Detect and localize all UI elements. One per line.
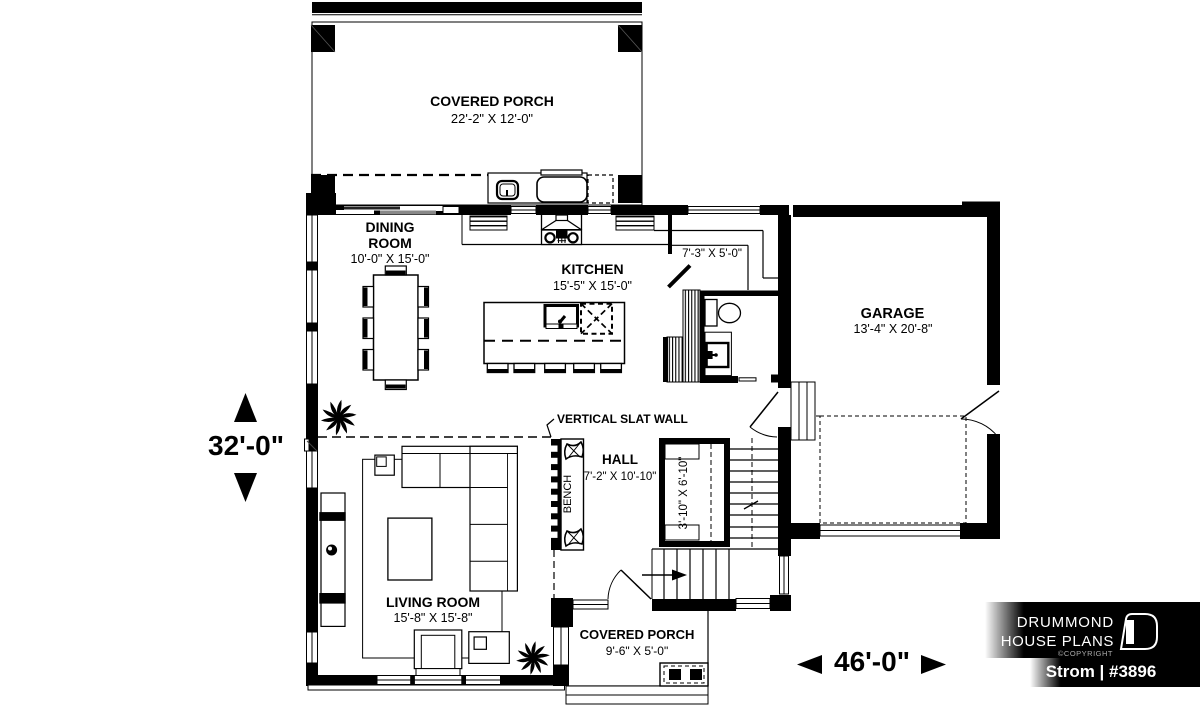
svg-text:DINING: DINING — [366, 219, 415, 235]
svg-text:10'-0" X 15'-0": 10'-0" X 15'-0" — [351, 252, 430, 266]
svg-text:ROOM: ROOM — [368, 235, 412, 251]
svg-text:9'-6" X 5'-0": 9'-6" X 5'-0" — [606, 644, 668, 658]
svg-text:32'-0": 32'-0" — [208, 430, 284, 461]
svg-text:DRUMMOND: DRUMMOND — [1017, 614, 1114, 631]
svg-text:BENCH: BENCH — [562, 475, 574, 514]
svg-text:15'-5" X 15'-0": 15'-5" X 15'-0" — [553, 279, 632, 293]
svg-text:15'-8" X 15'-8": 15'-8" X 15'-8" — [394, 611, 473, 625]
svg-text:COVERED PORCH: COVERED PORCH — [580, 627, 695, 642]
svg-text:©COPYRIGHT: ©COPYRIGHT — [1058, 649, 1113, 658]
svg-text:HALL: HALL — [602, 452, 638, 467]
svg-text:VERTICAL SLAT WALL: VERTICAL SLAT WALL — [557, 412, 688, 426]
svg-text:3'-10" X 6'-10": 3'-10" X 6'-10" — [678, 457, 690, 530]
svg-text:22'-2" X 12'-0": 22'-2" X 12'-0" — [451, 111, 534, 126]
svg-text:7'-2" X 10'-10": 7'-2" X 10'-10" — [584, 471, 657, 483]
svg-text:7'-3" X 5'-0": 7'-3" X 5'-0" — [682, 248, 742, 260]
svg-text:KITCHEN: KITCHEN — [561, 261, 623, 277]
svg-text:46'-0": 46'-0" — [834, 646, 910, 677]
svg-text:Strom | #3896: Strom | #3896 — [1046, 662, 1157, 681]
svg-text:LIVING ROOM: LIVING ROOM — [386, 594, 480, 610]
svg-text:COVERED PORCH: COVERED PORCH — [430, 93, 554, 109]
svg-text:GARAGE: GARAGE — [861, 306, 925, 322]
svg-text:13'-4" X 20'-8": 13'-4" X 20'-8" — [854, 322, 933, 336]
svg-text:HOUSE PLANS: HOUSE PLANS — [1001, 633, 1114, 650]
